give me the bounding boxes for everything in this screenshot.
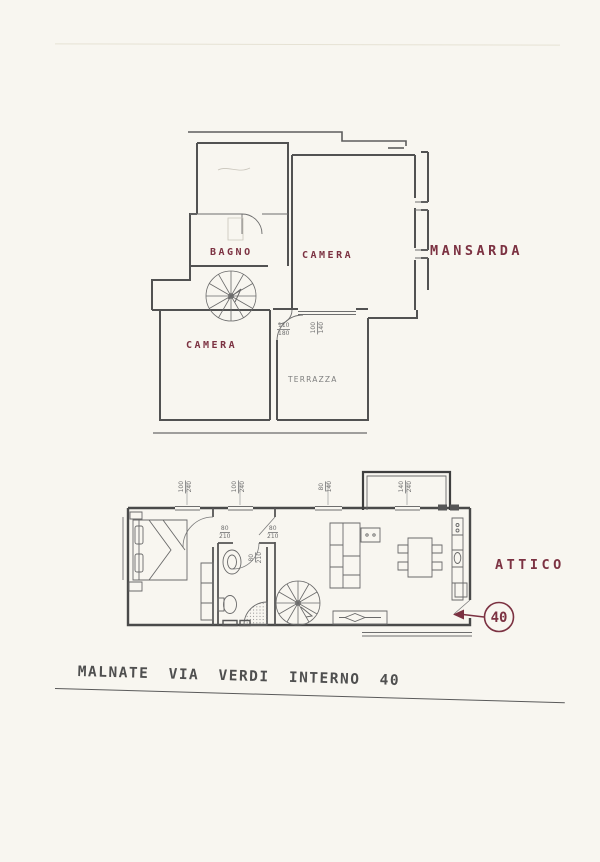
sideboard — [333, 611, 387, 624]
wardrobe — [201, 563, 213, 620]
sink — [223, 550, 241, 574]
shower — [244, 602, 267, 625]
dimension-attico-door2: 80 210 — [267, 525, 278, 540]
side-table — [361, 528, 380, 542]
spiral-staircase-mansarda — [206, 271, 256, 321]
nightstands — [129, 512, 142, 591]
entrance-arrow-head — [453, 610, 464, 620]
dimension-window-mansarda: 100 140 — [310, 321, 325, 334]
spiral-staircase-attico — [276, 581, 320, 625]
toilet — [218, 596, 237, 614]
kitchen-counter — [452, 518, 467, 600]
mansarda-windows-doors — [190, 202, 428, 340]
dimension-door-mansarda: 110 180 — [277, 322, 290, 337]
unit-number-text: 40 — [491, 610, 508, 626]
mansarda-floor-plan — [140, 118, 480, 453]
caption-underline — [55, 688, 565, 703]
dining-table — [398, 538, 442, 577]
attico-outer-walls — [128, 508, 470, 625]
entrance-arrow-line — [463, 615, 484, 618]
dimension-attico-win3: 80 140 — [318, 481, 333, 492]
dimension-attico-win4: 140 240 — [398, 480, 413, 493]
scanned-floor-plan-page: BAGNO CAMERA CAMERA TERRAZZA MANSARDA 11… — [0, 0, 600, 862]
mansarda-roof-outline — [188, 132, 406, 148]
bed — [133, 520, 187, 580]
room-label-camera-top: CAMERA — [302, 250, 353, 261]
sofa — [330, 523, 360, 588]
unit-number-badge: 40 — [450, 597, 520, 639]
dimension-attico-win1: 100 240 — [178, 480, 193, 493]
room-label-bagno: BAGNO — [210, 247, 253, 258]
pencil-marks — [218, 168, 250, 240]
scan-artifact-line — [55, 43, 560, 45]
plan-title-attico: ATTICO — [495, 557, 565, 573]
dimension-attico-door1: 80 210 — [219, 525, 230, 540]
attico-floor-plan — [105, 455, 490, 670]
room-label-camera-bottom: CAMERA — [186, 340, 237, 351]
room-label-terrazza: TERRAZZA — [288, 375, 338, 384]
dimension-attico-door3: 80 210 — [248, 552, 263, 563]
dimension-attico-win2: 100 240 — [231, 480, 246, 493]
plan-title-mansarda: MANSARDA — [430, 243, 523, 259]
